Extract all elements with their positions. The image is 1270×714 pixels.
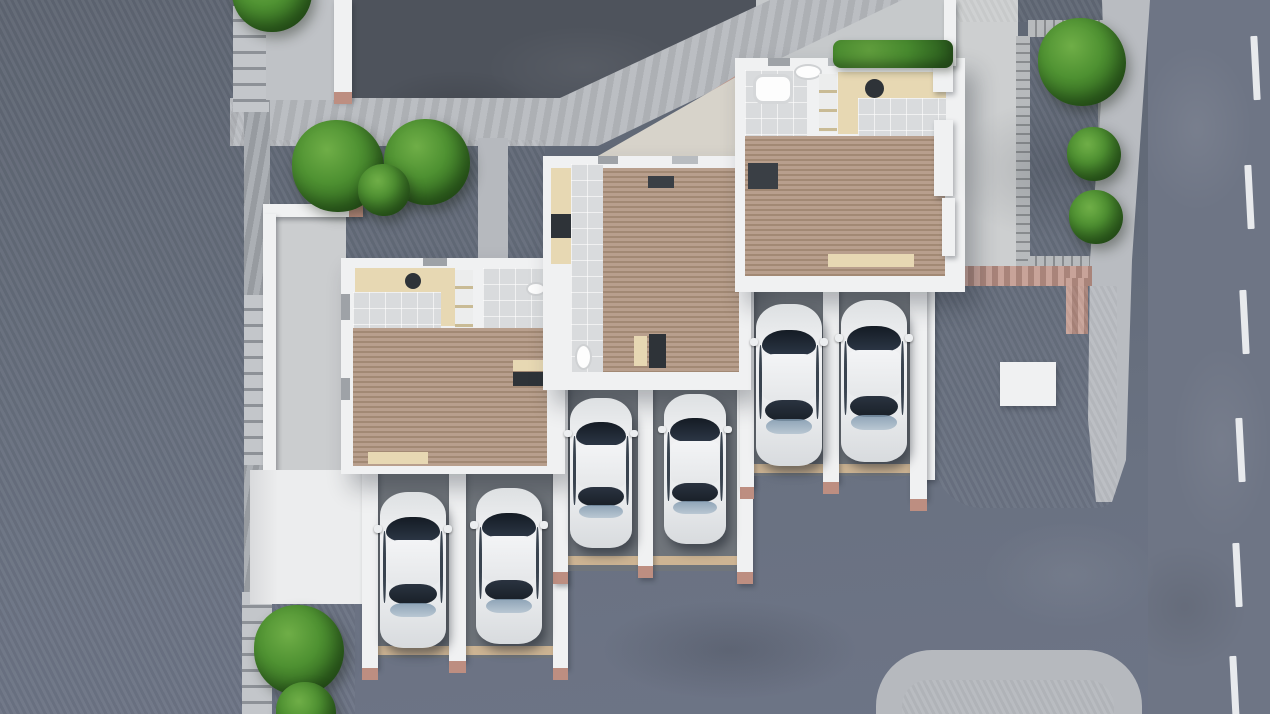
car-windshield <box>386 517 440 542</box>
tree <box>358 164 410 216</box>
door-mat <box>828 254 914 267</box>
car-mirror <box>835 334 843 342</box>
brick-cap <box>362 668 378 680</box>
brick-cap <box>449 661 466 673</box>
car-windshield <box>847 326 901 352</box>
car-mirror <box>630 430 637 438</box>
door-gap <box>423 258 447 266</box>
car-roof <box>848 350 900 397</box>
threshold <box>566 556 638 565</box>
car-side-window <box>844 341 847 416</box>
terrace-west <box>276 214 346 472</box>
carport-wall <box>910 283 927 499</box>
brick-cap <box>553 572 568 584</box>
car-rear-window <box>765 400 814 421</box>
street-road <box>1148 0 1270 714</box>
hallway-tile <box>571 164 603 372</box>
round-table <box>405 273 421 289</box>
car-side-window <box>720 432 723 501</box>
wood-deck-floor <box>353 328 547 466</box>
car-roof <box>577 445 625 489</box>
balcony-pillar <box>942 198 955 256</box>
garden-wall-stub <box>1000 362 1056 406</box>
door-mat <box>634 336 647 366</box>
car-rear-window <box>672 483 718 503</box>
car <box>756 304 822 466</box>
car-mirror <box>444 525 452 533</box>
car-mirror <box>724 426 731 434</box>
car-side-window <box>626 436 629 505</box>
car-mirror <box>374 525 382 533</box>
car-rear-window <box>389 584 438 604</box>
room-floor-tile <box>858 98 946 136</box>
car-mirror <box>564 430 571 438</box>
car-windshield <box>670 418 721 442</box>
carport-wall <box>638 383 653 578</box>
car-roof <box>387 540 439 585</box>
brick-cap <box>740 487 754 499</box>
sink <box>794 64 822 80</box>
kitchen-counter <box>355 268 453 294</box>
car-mirror <box>470 521 478 529</box>
terrace-wall-west <box>263 214 276 474</box>
car-rear-glass-reflection <box>673 501 716 515</box>
window-gap <box>341 378 350 400</box>
floor-vent <box>648 176 674 188</box>
brick-cap <box>910 499 927 511</box>
closet <box>455 270 473 328</box>
side-table <box>513 372 543 386</box>
car <box>664 394 726 544</box>
car-windshield <box>576 422 627 446</box>
car-rear-glass-reflection <box>486 599 532 613</box>
car-rear-glass-reflection <box>390 603 436 617</box>
carport-wall <box>362 460 378 668</box>
car-roof <box>763 354 815 401</box>
room-floor-tile <box>353 292 441 328</box>
car-side-window <box>667 432 670 501</box>
kitchen-counter <box>551 238 571 264</box>
carport-wall <box>449 463 466 661</box>
car <box>380 492 446 648</box>
tree <box>1069 190 1123 244</box>
car <box>841 300 907 462</box>
car-side-window <box>901 341 904 416</box>
car-side-window <box>536 527 539 599</box>
bathtub-sink <box>575 344 592 370</box>
door-gap <box>598 156 618 164</box>
bathroom-floor <box>483 268 545 328</box>
cooktop <box>551 214 571 238</box>
aerial-render-scene <box>0 0 1270 714</box>
car <box>476 488 542 644</box>
threshold <box>653 556 737 565</box>
hedge <box>833 40 953 68</box>
closet <box>819 74 837 132</box>
brick-cap <box>737 572 753 584</box>
car-mirror <box>658 426 665 434</box>
car-mirror <box>905 334 913 342</box>
round-table <box>865 79 884 98</box>
car-mirror <box>820 338 828 346</box>
deck-table <box>748 163 778 189</box>
threshold <box>466 646 553 655</box>
door-gap <box>341 294 350 320</box>
carport-wall <box>823 286 839 482</box>
car-rear-window <box>850 396 899 417</box>
car-side-window <box>440 531 443 603</box>
door-gap <box>768 58 790 66</box>
white-pad <box>250 470 362 604</box>
car-windshield <box>762 330 816 356</box>
bench <box>513 360 543 371</box>
kitchen-counter <box>441 268 455 326</box>
tree <box>1067 127 1121 181</box>
brick-cap <box>638 566 653 578</box>
car-side-window <box>759 345 762 420</box>
lawn-left-field <box>0 0 246 714</box>
garden-wall-top <box>334 0 352 100</box>
car-rear-window <box>578 487 624 507</box>
lawn-bottom-right <box>902 680 1114 714</box>
car <box>570 398 632 548</box>
car-rear-glass-reflection <box>851 415 897 430</box>
threshold <box>839 464 910 473</box>
brick-cap <box>553 668 568 680</box>
brick-cap <box>823 482 839 494</box>
window-gap <box>672 156 698 164</box>
brick-cap <box>334 92 352 104</box>
tree <box>1038 18 1126 106</box>
garden-path <box>478 138 508 262</box>
car-mirror <box>750 338 758 346</box>
car-side-window <box>816 345 819 420</box>
car-rear-window <box>485 580 534 600</box>
balcony-pillar <box>934 120 953 196</box>
plank-border-west <box>1016 36 1030 272</box>
car-roof <box>671 441 719 485</box>
door-mat-dark <box>649 334 666 368</box>
car-windshield <box>482 513 536 538</box>
kitchen-counter <box>551 168 571 214</box>
car-side-window <box>383 531 386 603</box>
car-rear-glass-reflection <box>766 419 812 434</box>
car-side-window <box>573 436 576 505</box>
car-roof <box>483 536 535 581</box>
door-mat <box>368 452 428 464</box>
car-side-window <box>479 527 482 599</box>
car-rear-glass-reflection <box>579 505 622 519</box>
car-mirror <box>540 521 548 529</box>
wood-deck-floor <box>603 168 739 372</box>
bathtub <box>753 74 793 104</box>
